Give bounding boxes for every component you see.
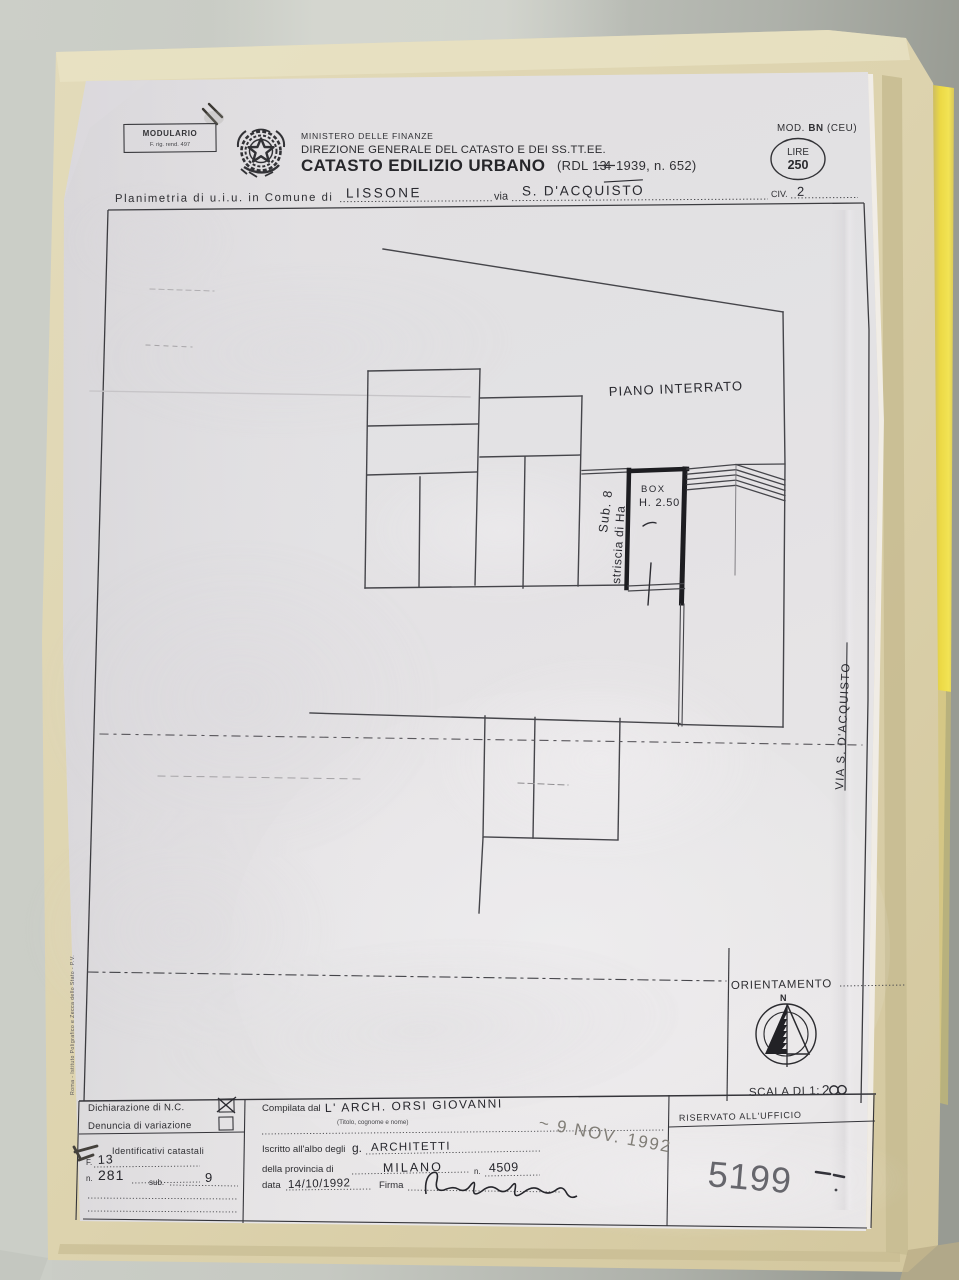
- svg-text:Compilata dal: Compilata dal: [262, 1103, 321, 1114]
- svg-text:Iscritto all'albo degli: Iscritto all'albo degli: [262, 1144, 345, 1155]
- svg-text:ARCHITETTI: ARCHITETTI: [371, 1141, 451, 1154]
- svg-text:MOD. BN (CEU): MOD. BN (CEU): [777, 123, 857, 134]
- svg-text:250: 250: [788, 158, 809, 172]
- svg-text:MODULARIO: MODULARIO: [143, 129, 198, 138]
- svg-text:S. D'ACQUISTO: S. D'ACQUISTO: [522, 183, 645, 199]
- svg-text:2: 2: [797, 184, 804, 199]
- svg-text:N: N: [780, 993, 787, 1003]
- svg-text:della provincia di: della provincia di: [262, 1164, 333, 1175]
- svg-text:Planimetria di u.i.u. in Comun: Planimetria di u.i.u. in Comune di: [115, 192, 334, 205]
- svg-text:ORIENTAMENTO: ORIENTAMENTO: [731, 978, 832, 992]
- svg-text:CATASTO EDILIZIO URBANO: CATASTO EDILIZIO URBANO: [301, 156, 545, 175]
- svg-text:LIRE: LIRE: [787, 147, 809, 158]
- svg-text:n.: n.: [474, 1167, 481, 1176]
- svg-text:281: 281: [98, 1167, 124, 1183]
- svg-text:F. rig. rend. 497: F. rig. rend. 497: [150, 142, 190, 148]
- svg-text:2: 2: [822, 1082, 831, 1098]
- svg-text:MINISTERO DELLE FINANZE: MINISTERO DELLE FINANZE: [301, 131, 434, 141]
- svg-text:13: 13: [97, 1152, 114, 1167]
- svg-text:Firma: Firma: [379, 1180, 404, 1191]
- svg-text:LISSONE: LISSONE: [346, 185, 422, 200]
- svg-text:n.: n.: [86, 1174, 93, 1183]
- svg-text:Dichiarazione di N.C.: Dichiarazione di N.C.: [88, 1102, 185, 1114]
- svg-text:F.: F.: [86, 1158, 92, 1167]
- svg-text:(Titolo, cognome e nome): (Titolo, cognome e nome): [337, 1119, 409, 1126]
- svg-text:CIV.: CIV.: [771, 189, 788, 199]
- svg-text:9: 9: [205, 1170, 212, 1185]
- svg-text:via: via: [494, 191, 509, 203]
- svg-text:SCALA DI 1:: SCALA DI 1:: [749, 1085, 820, 1099]
- svg-text:1939, n. 652): 1939, n. 652): [616, 158, 697, 173]
- svg-text:4509: 4509: [489, 1160, 519, 1175]
- svg-text:g.: g.: [352, 1141, 362, 1155]
- svg-text:BOX: BOX: [641, 484, 666, 495]
- svg-text:data: data: [262, 1180, 281, 1191]
- svg-text:DIREZIONE GENERALE DEL CATASTO: DIREZIONE GENERALE DEL CATASTO E DEI SS.…: [301, 144, 606, 156]
- svg-text:sub.: sub.: [149, 1178, 164, 1187]
- svg-text:Identificativi catastali: Identificativi catastali: [112, 1146, 204, 1156]
- svg-text:Roma - Istituto Poligrafico e: Roma - Istituto Poligrafico e Zecca dell…: [70, 955, 76, 1095]
- svg-text:5199: 5199: [706, 1153, 793, 1201]
- svg-text:H. 2.50: H. 2.50: [639, 497, 680, 509]
- svg-text:Denuncia di variazione: Denuncia di variazione: [88, 1120, 192, 1132]
